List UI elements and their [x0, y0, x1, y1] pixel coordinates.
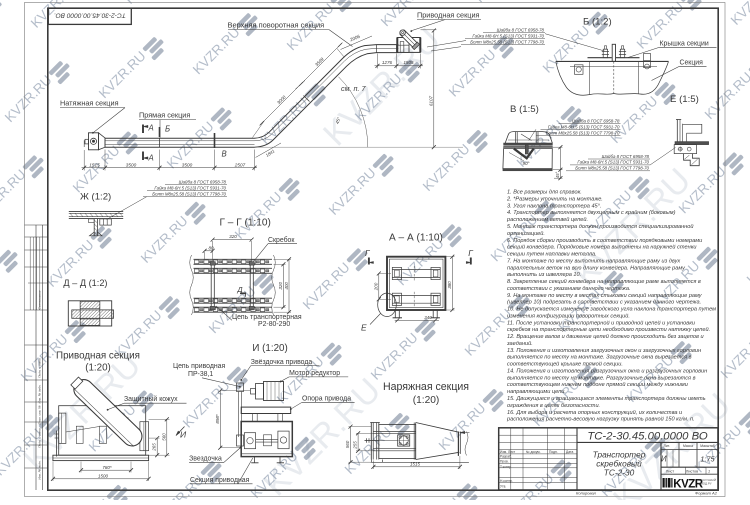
svg-text:соответствующем нижнем поддоне: соответствующем нижнем поддоне прямой се… [507, 381, 688, 388]
svg-text:А: А [148, 154, 154, 163]
svg-text:45°: 45° [555, 171, 560, 178]
svg-text:Утв.: Утв. [500, 485, 506, 489]
svg-text:2. *Размеры уточнить на монта: 2. *Размеры уточнить на монтаже. [506, 197, 603, 203]
svg-text:1: 1 [708, 470, 710, 474]
svg-text:А – А (1:10): А – А (1:10) [389, 232, 443, 243]
svg-text:Масштаб: Масштаб [700, 444, 715, 448]
svg-text:6107: 6107 [428, 95, 433, 106]
svg-text:Шайба 8 ГОСТ 6958-78: Шайба 8 ГОСТ 6958-78 [602, 154, 650, 159]
svg-text:400: 400 [284, 282, 289, 290]
svg-text:5. Монтаж транспортера должен: 5. Монтаж транспортера должен производит… [507, 223, 693, 230]
svg-text:320: 320 [229, 234, 237, 239]
svg-text:Подп.: Подп. [549, 450, 558, 454]
svg-text:изменения конфигурации поворот: изменения конфигурации поворотных секций… [507, 312, 630, 319]
svg-text:направляющими цепи.: направляющими цепи. [507, 389, 566, 395]
svg-text:расположением ветвей цепей.: расположением ветвей цепей. [506, 216, 588, 223]
svg-text:13. Положения и изготовления з: 13. Положения и изготовления загрузочных… [507, 348, 701, 354]
svg-text:11. После установки транспорт: 11. После установки транспортерной и при… [507, 319, 695, 326]
svg-text:В (1:5): В (1:5) [510, 104, 539, 115]
svg-text:Копировал: Копировал [576, 491, 597, 496]
svg-text:Ж (1:2): Ж (1:2) [80, 192, 111, 203]
svg-text:Взам. инв. №: Взам. инв. № [38, 405, 42, 425]
svg-text:Верхняя поворотная секция: Верхняя поворотная секция [228, 21, 325, 30]
svg-text:Гайка М8-6Н.5 (S13) ГОСТ 5931-: Гайка М8-6Н.5 (S13) ГОСТ 5931-70 [154, 185, 226, 190]
svg-text:15. Движущиеся и вращающиеся: 15. Движущиеся и вращающиеся элементы тр… [507, 396, 706, 402]
svg-text:Гайка М8-6Н.5 (S13) ГОСТ 5931-: Гайка М8-6Н.5 (S13) ГОСТ 5931-70 [472, 33, 544, 38]
svg-text:Защитный кожух: Защитный кожух [124, 395, 178, 403]
svg-text:Лит.: Лит. [664, 444, 670, 448]
svg-text:Звездочка: Звездочка [189, 455, 222, 462]
svg-text:898*: 898* [215, 414, 220, 424]
svg-text:Натяжная секция: Натяжная секция [60, 99, 119, 108]
svg-text:3. Угол наклона транспортера: 3. Угол наклона транспортера 45°. [507, 203, 601, 209]
svg-text:Подп. и дата: Подп. и дата [38, 358, 42, 378]
svg-text:560: 560 [345, 440, 350, 448]
svg-text:1505: 1505 [403, 60, 414, 65]
svg-text:ТС-2-30: ТС-2-30 [604, 467, 635, 477]
svg-text:А: А [148, 124, 154, 133]
svg-text:соответствующей крышке прямой: соответствующей крышке прямой секции. [507, 361, 623, 368]
svg-text:3500: 3500 [126, 162, 137, 167]
svg-text:(швеллер 10) подрезать в соо: (швеллер 10) подрезать в соответствии с … [507, 300, 701, 306]
svg-text:Масса: Масса [683, 444, 693, 448]
svg-text:Шайба 8 ГОСТ 6958-78: Шайба 8 ГОСТ 6958-78 [179, 180, 227, 185]
svg-text:380: 380 [447, 281, 452, 289]
svg-text:ТС-2-30.45.00.0000 ВО: ТС-2-30.45.00.0000 ВО [587, 430, 708, 442]
svg-text:ограждения в целях безопасност: ограждения в целях безопасности. [507, 403, 600, 409]
svg-text:выполняется по месту на монтаж: выполняется по месту на монтаже. Разгруз… [507, 375, 696, 381]
svg-text:1276: 1276 [382, 60, 393, 65]
svg-text:Секция: Секция [680, 59, 704, 66]
svg-text:780*: 780* [102, 465, 112, 470]
svg-text:Наряжная секция: Наряжная секция [383, 381, 469, 393]
svg-text:Скребок: Скребок [268, 236, 295, 244]
svg-text:Пров.: Пров. [500, 459, 509, 463]
svg-text:Звёздочка привода: Звёздочка привода [251, 359, 313, 366]
svg-text:Болт М8х25.58 (S13) ГОСТ 7798-: Болт М8х25.58 (S13) ГОСТ 7798-70 [546, 130, 620, 135]
svg-text:В: В [222, 149, 227, 158]
svg-text:(1:20): (1:20) [85, 362, 111, 373]
svg-text:заеданий.: заеданий. [506, 340, 533, 347]
svg-text:Т.контр.: Т.контр. [500, 465, 512, 469]
svg-text:выполняется по месту на монтаж: выполняется по месту на монтаже. Загрузо… [507, 355, 692, 361]
svg-text:Прямая секция: Прямая секция [139, 111, 190, 120]
svg-text:Болт М8х25.58 (S13) ГОСТ 7798-: Болт М8х25.58 (S13) ГОСТ 7798-70 [575, 166, 649, 171]
svg-text:1515: 1515 [89, 162, 100, 167]
svg-text:Г – Г (1:10): Г – Г (1:10) [220, 217, 271, 228]
svg-text:Изм. Лист: Изм. Лист [500, 450, 516, 454]
svg-text:Секция приводная: Секция приводная [190, 477, 250, 484]
svg-text:Лист: Лист [666, 470, 675, 474]
svg-text:6. Порядок сборки производить: 6. Порядок сборки производить в соответс… [507, 238, 702, 244]
svg-text:Б: Б [165, 124, 170, 133]
svg-text:И: И [180, 429, 187, 439]
svg-text:8. Закрепление секций конвейе: 8. Закрепление секций конвейера на напра… [507, 278, 701, 285]
svg-text:Цепь транспортерная: Цепь транспортерная [232, 314, 302, 321]
svg-text:560: 560 [161, 433, 166, 441]
svg-text:80: 80 [208, 245, 214, 250]
svg-text:Гайка М8-6Н.5 (S13) ГОСТ 5931-: Гайка М8-6Н.5 (S13) ГОСТ 5931-70 [577, 160, 649, 165]
svg-text:Болт М8х25.58 (S13) ГОСТ 7798-: Болт М8х25.58 (S13) ГОСТ 7798-70 [470, 39, 544, 44]
svg-text:7. На монтаже по месту выполн: 7. На монтаже по месту выполнить направл… [507, 258, 680, 264]
svg-text:265: 265 [152, 443, 157, 452]
svg-text:Д – Д (1:2): Д – Д (1:2) [63, 278, 107, 288]
svg-text:ПР-38,1: ПР-38,1 [188, 371, 213, 378]
svg-text:1500: 1500 [98, 473, 109, 478]
svg-text:2507: 2507 [234, 162, 246, 167]
svg-text:Б (1:2): Б (1:2) [583, 17, 612, 28]
svg-text:90°: 90° [523, 161, 530, 166]
svg-text:Приводная секция: Приводная секция [56, 350, 140, 361]
svg-text:Р2-80-290: Р2-80-290 [258, 321, 290, 328]
svg-text:организацией.: организацией. [507, 230, 545, 237]
svg-text:200: 200 [374, 282, 379, 291]
svg-text:Листов: Листов [686, 470, 698, 474]
svg-text:255: 255 [353, 441, 358, 450]
svg-text:параллельных веток на всю длин: параллельных веток на всю длину конвейер… [507, 264, 686, 271]
svg-text:Шайба 8 ГОСТ 6958-78: Шайба 8 ГОСТ 6958-78 [572, 119, 620, 124]
svg-text:расположения расчетно-весовую: расположения расчетно-весовую нагрузку п… [506, 416, 695, 423]
svg-text:Подп. и дата: Подп. и дата [38, 428, 42, 448]
svg-text:Шайба 8 ГОСТ 6958-78: Шайба 8 ГОСТ 6958-78 [497, 28, 545, 33]
svg-text:Приводная секция: Приводная секция [417, 11, 480, 20]
svg-text:16. Для выбора и расчета опор: 16. Для выбора и расчета опорных констру… [507, 409, 682, 416]
svg-text:1. Все размеры для справок.: 1. Все размеры для справок. [507, 190, 582, 196]
svg-text:Инв. № дубл.: Инв. № дубл. [38, 384, 42, 403]
svg-text:ЗАВОД.РУ: ЗАВОД.РУ [697, 482, 712, 486]
svg-text:1:75: 1:75 [700, 454, 715, 463]
svg-text:Разраб.: Разраб. [500, 455, 512, 459]
svg-text:Цепь приводная: Цепь приводная [173, 363, 225, 370]
svg-text:Мотор редуктор: Мотор редуктор [289, 370, 340, 377]
svg-text:320: 320 [278, 282, 283, 290]
svg-text:3500: 3500 [182, 162, 193, 167]
svg-text:секций конвейера. Порядковые н: секций конвейера. Порядковые номера выпо… [507, 244, 696, 251]
svg-text:Опора привода: Опора привода [302, 395, 351, 402]
svg-text:Гайка М8-6Н.5 (S13) ГОСТ 5931-: Гайка М8-6Н.5 (S13) ГОСТ 5931-70 [548, 124, 620, 129]
svg-text:340: 340 [424, 315, 432, 320]
svg-text:Инв. № подл.: Инв. № подл. [38, 460, 42, 479]
svg-text:И: И [661, 454, 667, 463]
svg-text:9. На монтаже по месту в мест: 9. На монтаже по месту в местах стыковки… [507, 292, 703, 299]
svg-text:Крышка секции: Крышка секции [660, 40, 709, 47]
svg-text:секции путем наплавки металла.: секции путем наплавки металла. [507, 252, 597, 258]
svg-text:скребков на транспортерные цеп: скребков на транспортерные цепи необходи… [507, 326, 710, 333]
svg-text:Согласовано: Согласовано [38, 290, 42, 309]
svg-text:12. Вращение валов и движение: 12. Вращение валов и движение цепей долж… [507, 333, 704, 340]
svg-text:Болт М8х25.58 (S13) ГОСТ 7798-: Болт М8х25.58 (S13) ГОСТ 7798-70 [152, 191, 226, 196]
svg-text:4. Транспортер выполняется дв: 4. Транспортер выполняется двухцепным с … [507, 209, 676, 216]
svg-text:ТС-2-30.45.00.0000 ВО.: ТС-2-30.45.00.0000 ВО. [54, 11, 126, 18]
svg-text:№ докум.: № докум. [526, 450, 541, 454]
svg-text:см. п. 7: см. п. 7 [341, 84, 366, 93]
svg-text:Е (1:5): Е (1:5) [670, 94, 699, 105]
svg-text:соответствии с указанием данно: соответствии с указанием данного чертежа… [507, 286, 631, 292]
svg-text:выполнить из швеллера 10.: выполнить из швеллера 10. [507, 272, 581, 278]
svg-text:(1:20): (1:20) [413, 395, 440, 406]
svg-text:Дата: Дата [566, 450, 573, 454]
svg-text:10. Не допускается изменение з: 10. Не допускается изменение заводского … [507, 307, 716, 313]
svg-text:Е: Е [361, 323, 367, 333]
svg-text:1515: 1515 [410, 461, 421, 466]
svg-text:Н.контр.: Н.контр. [500, 479, 513, 483]
svg-text:Формат А2: Формат А2 [695, 490, 718, 495]
svg-text:И (1:20): И (1:20) [252, 343, 287, 354]
svg-text:14. Положения и изготовления: 14. Положения и изготовления разгрузочны… [507, 369, 707, 375]
